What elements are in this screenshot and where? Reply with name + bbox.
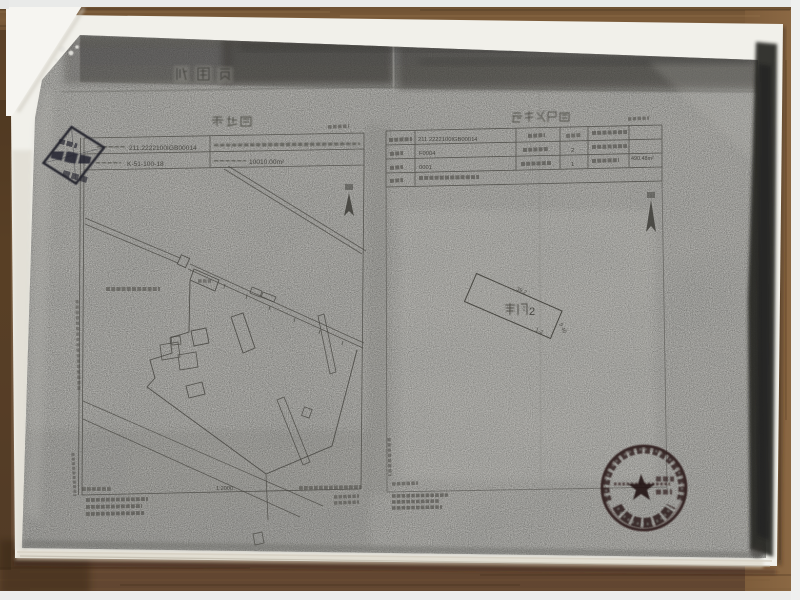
svg-text:1:2000: 1:2000 xyxy=(216,486,233,492)
svg-text:2: 2 xyxy=(529,306,535,318)
svg-text:F0004: F0004 xyxy=(419,151,436,157)
svg-text:490.48m²: 490.48m² xyxy=(631,156,654,162)
svg-text:10010.00m²: 10010.00m² xyxy=(249,159,285,166)
svg-text:211 2222100IGB00014: 211 2222100IGB00014 xyxy=(418,137,478,143)
svg-text:2: 2 xyxy=(571,148,574,154)
svg-text:211.2222100IGB00014: 211.2222100IGB00014 xyxy=(129,145,197,152)
svg-text:0001: 0001 xyxy=(419,165,432,171)
svg-text:1: 1 xyxy=(571,162,574,168)
svg-text:K-51-100-18: K-51-100-18 xyxy=(127,161,164,168)
